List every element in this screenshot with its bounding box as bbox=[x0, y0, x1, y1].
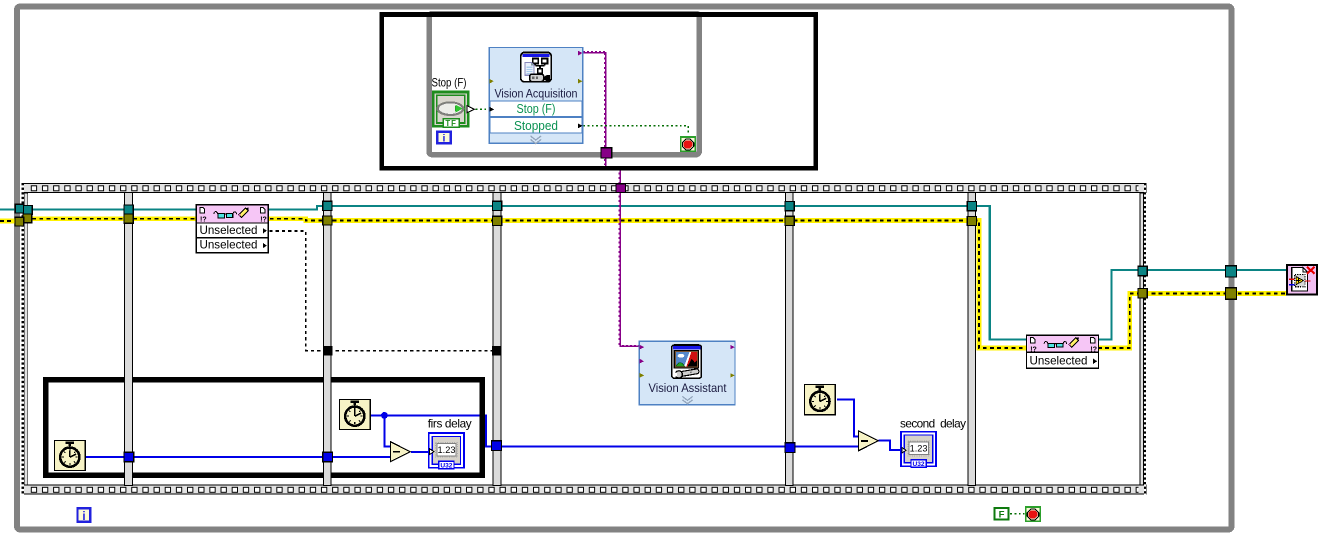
svg-text:firs delay: firs delay bbox=[428, 416, 472, 430]
svg-text:Unselected: Unselected bbox=[199, 224, 257, 237]
svg-text:Unselected: Unselected bbox=[199, 239, 257, 252]
svg-text:Unselected: Unselected bbox=[1029, 354, 1087, 367]
svg-text:F: F bbox=[999, 509, 1005, 520]
svg-text:i: i bbox=[82, 511, 85, 523]
svg-text:!?: !? bbox=[200, 217, 207, 224]
svg-text:Stop (F): Stop (F) bbox=[432, 75, 467, 89]
svg-text:!?: !? bbox=[1090, 346, 1097, 353]
svg-text:Vision Acquisition: Vision Acquisition bbox=[495, 86, 578, 100]
svg-text:Vision Assistant: Vision Assistant bbox=[649, 381, 727, 395]
svg-text:Stopped: Stopped bbox=[514, 119, 558, 133]
svg-text:second delay: second delay bbox=[900, 417, 966, 431]
svg-text:Stop (F): Stop (F) bbox=[517, 102, 556, 116]
svg-text:!?: !? bbox=[260, 217, 267, 224]
svg-text:TF: TF bbox=[445, 119, 457, 128]
svg-text:i: i bbox=[443, 133, 446, 145]
svg-text:!?: !? bbox=[1030, 346, 1037, 353]
